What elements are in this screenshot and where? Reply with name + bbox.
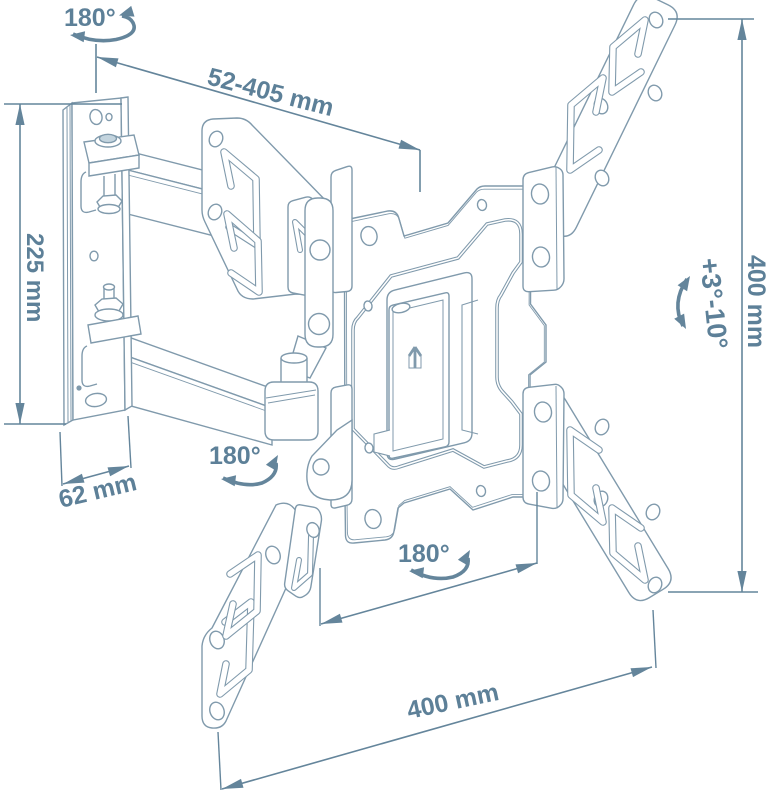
svg-text:180°: 180° — [398, 540, 450, 568]
svg-text:180°: 180° — [64, 4, 116, 32]
svg-text:225 mm: 225 mm — [21, 233, 48, 322]
svg-text:180°: 180° — [209, 442, 261, 470]
svg-text:400 mm: 400 mm — [742, 255, 770, 348]
